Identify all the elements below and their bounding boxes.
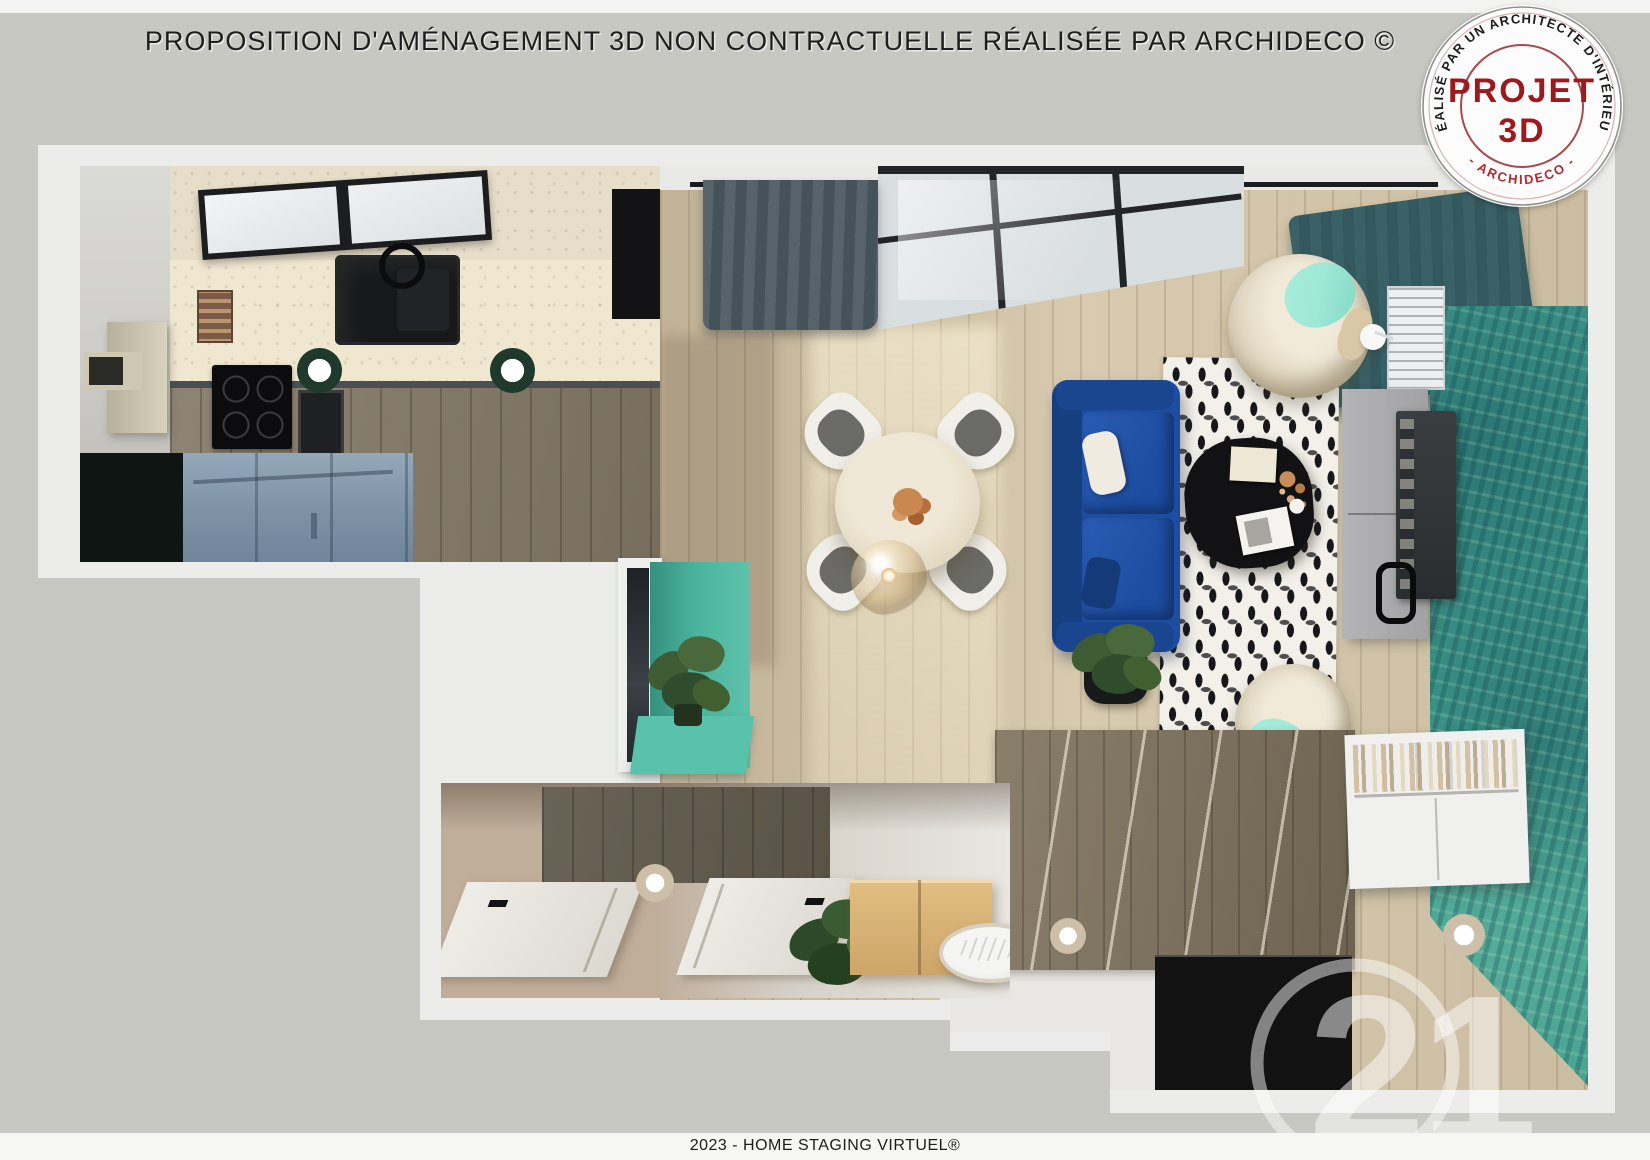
faucet: [379, 243, 425, 289]
plant-leaves: [1062, 618, 1172, 714]
wall-lamp: [1360, 324, 1386, 350]
tv-mount-handle: [1376, 562, 1416, 624]
table-centerpiece: [893, 488, 923, 516]
island-hinge: [311, 513, 317, 539]
lounge-chair: [1228, 254, 1372, 398]
bookshelf: [1344, 729, 1529, 889]
window-glass-glare: [898, 180, 1228, 300]
sofa-back: [1052, 384, 1082, 648]
footer-caption: 2023 - HOME STAGING VIRTUEL®: [0, 1133, 1650, 1159]
door-panel-line: [583, 888, 618, 972]
console-desk: [618, 558, 752, 782]
window-wall: [878, 166, 1244, 330]
book-photo: [1244, 517, 1273, 547]
hallway: [441, 783, 1010, 998]
bookshelf-door-split: [1435, 798, 1440, 880]
page-title: PROPOSITION D'AMÉNAGEMENT 3D NON CONTRAC…: [0, 26, 1540, 57]
radiator: [1387, 286, 1445, 390]
wall-sconce: [1050, 918, 1086, 954]
marble-veins: [957, 937, 1010, 961]
bookshelf-cubbies: [1353, 739, 1519, 793]
projet-3d-stamp: RÉALISÉ PAR UN ARCHITECTE D'INTÉRIEUR - …: [1418, 2, 1626, 210]
lamp-bulb: [881, 568, 897, 584]
copper-decor: [1279, 471, 1296, 488]
door-handle: [488, 900, 509, 907]
pendant-light: [297, 348, 342, 393]
induction-hob: [212, 365, 292, 449]
decor-white-sphere: [1289, 498, 1305, 514]
watermark-number: 21: [1308, 951, 1532, 1160]
wall-box-frame: [84, 352, 142, 390]
stamp-line2: 3D: [1498, 112, 1545, 150]
kitchen-sink: [335, 255, 460, 345]
skylight-pane: [348, 176, 486, 243]
pendant-lamp-glass: [851, 540, 927, 616]
sofa-arm: [1056, 380, 1174, 410]
spice-rack: [197, 290, 233, 343]
stamp-line1: PROJET: [1448, 72, 1596, 110]
century21-watermark: 21: [1240, 928, 1650, 1160]
plant-pot: [674, 704, 702, 726]
kitchen-island-blue: [183, 453, 413, 562]
curtain-left: [703, 180, 878, 330]
footer-strip: 2023 - HOME STAGING VIRTUEL®: [0, 1133, 1650, 1160]
door-panel-line: [693, 884, 725, 968]
console-plant: [640, 630, 736, 734]
pendant-light: [490, 348, 535, 393]
hallway-door: [441, 882, 643, 977]
refrigerator: [612, 189, 660, 319]
island-rail: [193, 470, 393, 484]
chest-split: [918, 880, 921, 975]
wall-sconce: [636, 864, 674, 902]
skylight-pane: [204, 187, 340, 254]
page: PROPOSITION D'AMÉNAGEMENT 3D NON CONTRAC…: [0, 0, 1650, 1160]
wall-box-inner: [89, 357, 123, 385]
wall-sconce: [1443, 914, 1485, 956]
top-white-strip: [0, 0, 1650, 13]
hall-wood-floor: [542, 787, 830, 883]
kitchen: [80, 166, 660, 562]
window-frame-top: [878, 166, 1244, 174]
sofa: [1052, 380, 1180, 652]
kitchen-island-dark: [80, 453, 183, 562]
coffee-table-book: [1236, 506, 1295, 555]
coffee-table-book: [1229, 446, 1277, 482]
wall-oven: [298, 390, 344, 458]
